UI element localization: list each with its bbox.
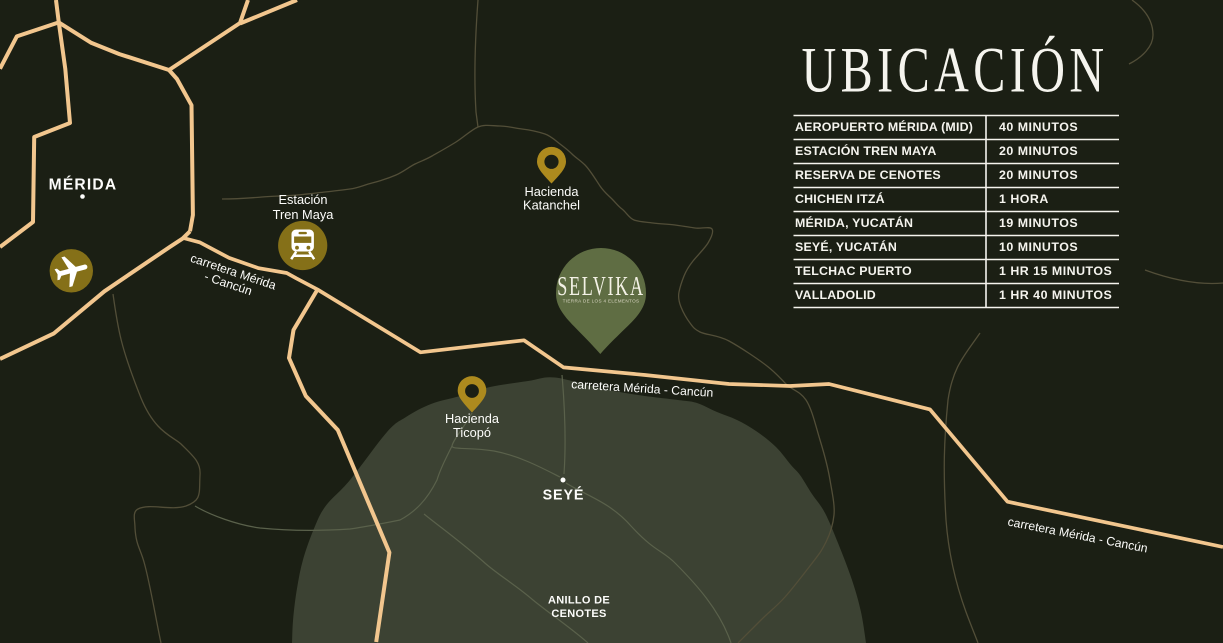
svg-text:ESTACIÓN TREN MAYA: ESTACIÓN TREN MAYA bbox=[795, 143, 937, 158]
svg-text:AEROPUERTO MÉRIDA (MID): AEROPUERTO MÉRIDA (MID) bbox=[795, 119, 973, 134]
svg-text:CENOTES: CENOTES bbox=[551, 608, 606, 620]
svg-text:19 MINUTOS: 19 MINUTOS bbox=[999, 216, 1078, 230]
svg-text:10 MINUTOS: 10 MINUTOS bbox=[999, 240, 1078, 254]
svg-text:1 HORA: 1 HORA bbox=[999, 192, 1049, 206]
svg-text:SELVIKA: SELVIKA bbox=[557, 271, 644, 302]
svg-text:TELCHAC PUERTO: TELCHAC PUERTO bbox=[795, 264, 912, 278]
svg-text:SEYÉ, YUCATÁN: SEYÉ, YUCATÁN bbox=[795, 239, 897, 254]
svg-text:Tren Maya: Tren Maya bbox=[273, 207, 335, 222]
svg-text:1 HR 40 MINUTOS: 1 HR 40 MINUTOS bbox=[999, 288, 1112, 302]
svg-text:40 MINUTOS: 40 MINUTOS bbox=[999, 120, 1078, 134]
svg-text:MÉRIDA: MÉRIDA bbox=[49, 175, 118, 194]
svg-text:UBICACIÓN: UBICACIÓN bbox=[801, 35, 1108, 107]
svg-text:Katanchel: Katanchel bbox=[523, 198, 580, 213]
svg-text:MÉRIDA, YUCATÁN: MÉRIDA, YUCATÁN bbox=[795, 215, 913, 230]
svg-text:Hacienda: Hacienda bbox=[445, 411, 500, 426]
svg-text:20 MINUTOS: 20 MINUTOS bbox=[999, 168, 1078, 182]
svg-text:20 MINUTOS: 20 MINUTOS bbox=[999, 144, 1078, 158]
svg-text:Ticopó: Ticopó bbox=[453, 425, 491, 440]
svg-text:VALLADOLID: VALLADOLID bbox=[795, 288, 876, 302]
svg-text:1 HR 15 MINUTOS: 1 HR 15 MINUTOS bbox=[999, 264, 1112, 278]
svg-text:Estación: Estación bbox=[278, 192, 327, 207]
svg-text:RESERVA DE CENOTES: RESERVA DE CENOTES bbox=[795, 168, 941, 182]
svg-text:ANILLO DE: ANILLO DE bbox=[548, 595, 610, 607]
svg-text:CHICHEN ITZÁ: CHICHEN ITZÁ bbox=[795, 191, 885, 206]
svg-text:SEYÉ: SEYÉ bbox=[543, 487, 585, 504]
svg-text:TIERRA DE LOS 4 ELEMENTOS: TIERRA DE LOS 4 ELEMENTOS bbox=[563, 299, 640, 304]
